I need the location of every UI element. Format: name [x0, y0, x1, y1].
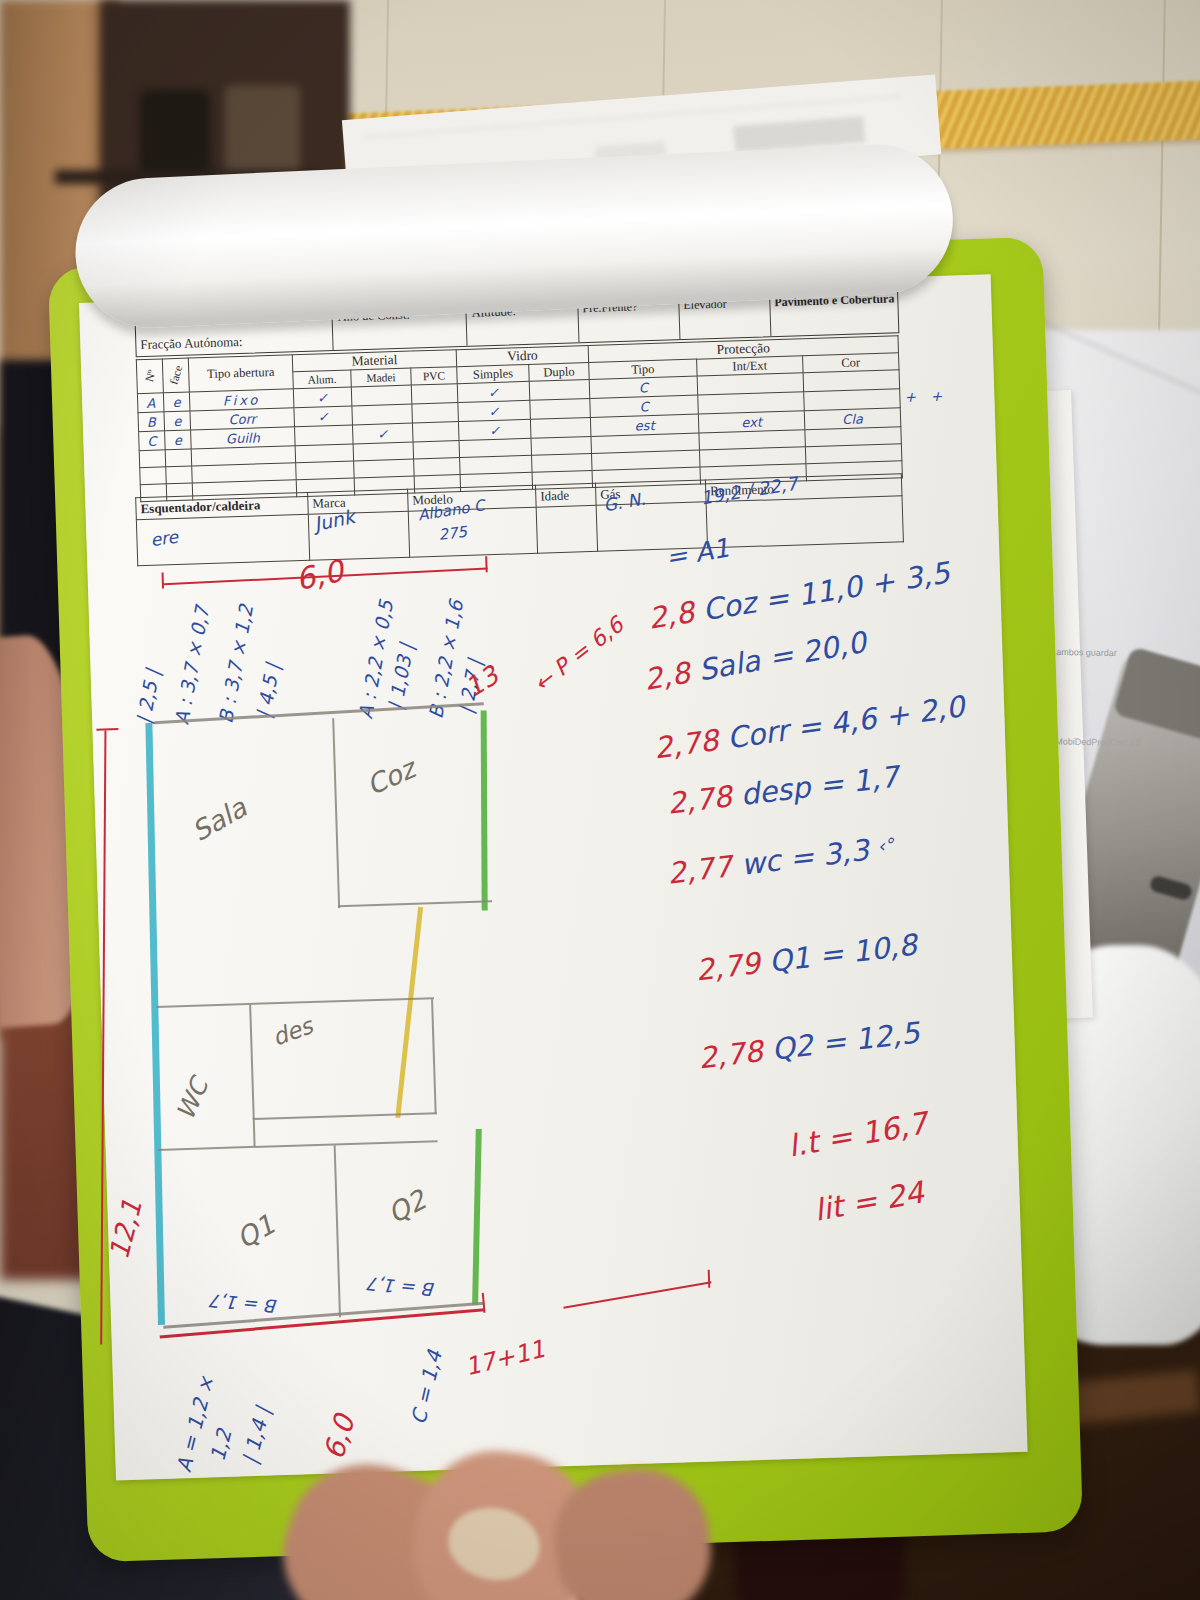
dim-note-a2: 1,2: [205, 1427, 236, 1464]
plan-wall-right-green: [481, 710, 488, 910]
row-b-face: e: [173, 414, 181, 429]
calc-body: wc = 3,3: [739, 833, 871, 882]
total-text: l.t = 16,7: [786, 1105, 931, 1163]
fraccao-label: Fracção Autónoma:: [140, 334, 243, 353]
room-label-sala: Sala: [186, 792, 252, 848]
col-face: face: [162, 358, 189, 393]
col-duplo: Duplo: [529, 363, 590, 382]
row-c-n: C: [147, 434, 157, 449]
calc-line-corr: 2,78 Corr = 4,6 + 2,0: [652, 689, 967, 765]
calc-line-q2: 2,78 Q2 = 12,5: [696, 1015, 921, 1075]
calc-body: Sala = 20,0: [696, 625, 869, 687]
row-c-ptipo: est: [634, 418, 654, 434]
plan-wall-sala-coz-divider: [332, 718, 340, 908]
ceiling-height: 2,77: [666, 849, 734, 890]
row-b-n: B: [147, 415, 156, 430]
calc-line-sala: 2,8 Sala = 20,0: [641, 625, 868, 697]
dim-label-12-1: 12,1: [103, 1196, 148, 1262]
plan-wall-lower-green: [472, 1129, 482, 1305]
room-label-q2: Q2: [383, 1184, 431, 1229]
row-c-cor: Cla: [842, 411, 863, 427]
calc-body: Coz = 11,0 + 3,5: [700, 555, 952, 627]
calc-total-lit: lit = 24: [811, 1174, 926, 1227]
calc-body: Corr = 4,6 + 2,0: [725, 689, 966, 755]
ceiling-height: 2,8: [641, 655, 692, 696]
heater-col-idade: Idade: [535, 483, 596, 507]
faint-print-note: ambos guardar: [1056, 647, 1117, 658]
perimeter-note: ← P = 6,6: [529, 612, 628, 697]
dim-note: B : 3,7 × 1,2: [214, 603, 257, 725]
ceiling-height: 2,8: [646, 595, 697, 636]
total-text: lit = 24: [811, 1174, 926, 1227]
col-madei: Madei: [351, 368, 412, 387]
dim-tick: [708, 1270, 711, 1288]
row-a-n: A: [146, 396, 155, 411]
plan-wall-step: [338, 900, 492, 907]
dim-note: A : 3,7 × 0,7: [170, 604, 213, 726]
dim-tick: [162, 572, 165, 588]
row-c-tipo: Guilh: [226, 430, 260, 446]
ceiling-height: 2,79: [694, 946, 762, 987]
col-tipo-abertura: Tipo abertura: [188, 355, 293, 392]
plan-wall-q-divider: [334, 1145, 341, 1317]
dim-tick: [482, 1293, 486, 1313]
survey-sheet: Fracção Autónoma: Ano de Const: Altitude…: [79, 274, 1028, 1480]
calc-line-q1: 2,79 Q1 = 10,8: [694, 927, 919, 987]
plan-wall-left-cyan: [145, 723, 165, 1325]
dim-note: | 4,5 |: [252, 662, 283, 720]
row-a-alum: ✓: [317, 390, 328, 405]
dim-note-a3: | 1,4 |: [237, 1404, 274, 1466]
room-label-q1: Q1: [231, 1208, 280, 1254]
calc-body: desp = 1,7: [739, 759, 901, 812]
row-c-intext: ext: [741, 415, 762, 431]
col-alum: Alum.: [293, 370, 352, 389]
row-a-face: e: [172, 395, 180, 410]
plan-wall-des-bottom: [253, 1112, 437, 1120]
calc-body: Q2 = 12,5: [770, 1015, 922, 1066]
photo-scene: ambos guardar MobiDedProdCert v.5 Fracçã…: [0, 0, 1200, 1600]
dim-label-6-0-bottom: 6,0: [317, 1411, 361, 1463]
col-no: Nº: [136, 359, 163, 394]
room-label-wc: WC: [170, 1074, 214, 1124]
calc-line-wc: 2,77 wc = 3,3 ‹°: [666, 830, 896, 891]
dim-note: | 2,5 |: [132, 667, 163, 725]
row-b-alum: ✓: [318, 409, 329, 424]
plan-wall-wc-bottom: [158, 1140, 438, 1151]
dim-tick: [485, 556, 488, 572]
dim-note: | 1,03 |: [384, 641, 418, 711]
clipboard: Fracção Autónoma: Ano de Const: Altitude…: [48, 237, 1083, 1563]
room-label-des: des: [269, 1013, 316, 1051]
plan-wall-yellow: [395, 907, 423, 1118]
margin-note: + +: [904, 388, 947, 405]
dim-line-bottom-right: [563, 1281, 711, 1309]
room-q1-width-note: B = 1,7: [210, 1290, 279, 1317]
ceiling-height: 2,78: [696, 1034, 764, 1075]
hw-modelo-value-line2: 275: [437, 523, 468, 544]
row-b-ptipo: C: [639, 399, 649, 414]
plan-wall-wc-des-divider: [249, 1005, 255, 1147]
room-label-coz: Coz: [362, 753, 420, 801]
room-q2-width-note: B = 1,7: [367, 1273, 436, 1300]
row-a-tipo: Fixo: [223, 392, 261, 408]
hw-esquentador-value: ere: [149, 527, 179, 551]
dim-note-c: C = 1,4: [406, 1348, 447, 1427]
faint-print-note: MobiDedProdCert v.5: [1055, 736, 1141, 747]
row-a-simples: ✓: [488, 385, 499, 400]
calc-line-desp: 2,78 desp = 1,7: [665, 759, 900, 820]
dim-tick: [96, 728, 118, 731]
ceiling-height: 2,78: [652, 723, 721, 765]
row-b-simples: ✓: [488, 404, 499, 419]
col-pvc: PVC: [411, 367, 458, 385]
row-c-simples: ✓: [489, 423, 500, 438]
row-c-madei: ✓: [377, 426, 388, 441]
dim-sum-note: 17+11: [462, 1335, 548, 1382]
plan-wall-sala-bottom: [156, 997, 434, 1008]
row-a-ptipo: C: [639, 380, 649, 395]
plan-wall-des-right: [431, 999, 437, 1114]
calc-body: Q1 = 10,8: [767, 927, 919, 978]
calc-marks: ‹°: [876, 834, 895, 857]
calc-total-lt: l.t = 16,7: [786, 1105, 931, 1163]
row-b-tipo: Corr: [228, 411, 256, 427]
row-c-face: e: [174, 433, 182, 448]
ceiling-height: 2,78: [665, 779, 733, 820]
